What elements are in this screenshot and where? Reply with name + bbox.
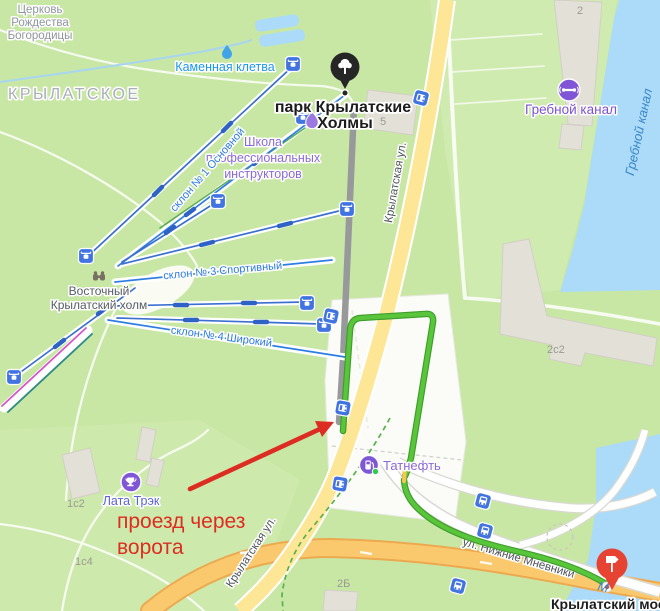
- bus-stop-icon[interactable]: [449, 577, 467, 595]
- bridge-label: Крылатский мост: [551, 596, 660, 611]
- hill-label[interactable]: Восточный: [69, 284, 130, 298]
- school-label[interactable]: инструкторов: [224, 167, 302, 181]
- hill-label[interactable]: Крылатский холм: [51, 298, 148, 312]
- gas-station-label[interactable]: Татнефть: [383, 458, 441, 473]
- building-label: 5: [380, 116, 386, 128]
- lata-track-icon[interactable]: [121, 472, 141, 492]
- building-label: 1с2: [67, 498, 85, 510]
- church-label[interactable]: Церковь: [18, 4, 63, 16]
- bus-stop-icon[interactable]: [476, 522, 494, 540]
- bus-stop-icon[interactable]: [412, 89, 430, 107]
- building-label: 2: [577, 5, 583, 17]
- ski-lift-icon[interactable]: [286, 57, 301, 72]
- annotation-text: ворота: [117, 536, 184, 559]
- stone-cleft-label[interactable]: Каменная клетва: [175, 60, 274, 74]
- annotation-text: проезд через: [117, 510, 245, 533]
- ski-lift-icon[interactable]: [79, 249, 94, 264]
- ski-lift-icon[interactable]: [7, 370, 22, 385]
- bus-stop-icon[interactable]: [331, 475, 348, 492]
- church-label[interactable]: Богородицы: [8, 30, 73, 42]
- bus-stop-icon[interactable]: [322, 307, 340, 325]
- bus-stop-icon[interactable]: [474, 492, 492, 510]
- building-label: 2с2: [547, 344, 565, 356]
- rowing-canal-label[interactable]: Гребной канал: [525, 102, 617, 117]
- map-canvas[interactable]: ул. Нижние Мнёвники: [0, 0, 660, 611]
- park-label[interactable]: Холмы: [317, 115, 373, 132]
- school-label[interactable]: Школа: [244, 135, 282, 149]
- gas-station-icon[interactable]: [360, 456, 379, 475]
- building-label: 1с4: [75, 556, 93, 568]
- park-label[interactable]: парк Крылатские: [275, 99, 411, 116]
- district-label: КРЫЛАТСКОЕ: [8, 86, 141, 103]
- lata-track-label[interactable]: Лата Трэк: [103, 494, 160, 508]
- bus-stop-icon[interactable]: [334, 399, 351, 416]
- ski-lift-icon[interactable]: [211, 194, 226, 209]
- ski-lift-icon[interactable]: [340, 202, 355, 217]
- building-label: 2Б: [337, 578, 350, 590]
- church-label[interactable]: Рождества: [11, 17, 69, 29]
- rowing-canal-icon[interactable]: [558, 79, 580, 101]
- ski-lift-icon[interactable]: [300, 296, 315, 311]
